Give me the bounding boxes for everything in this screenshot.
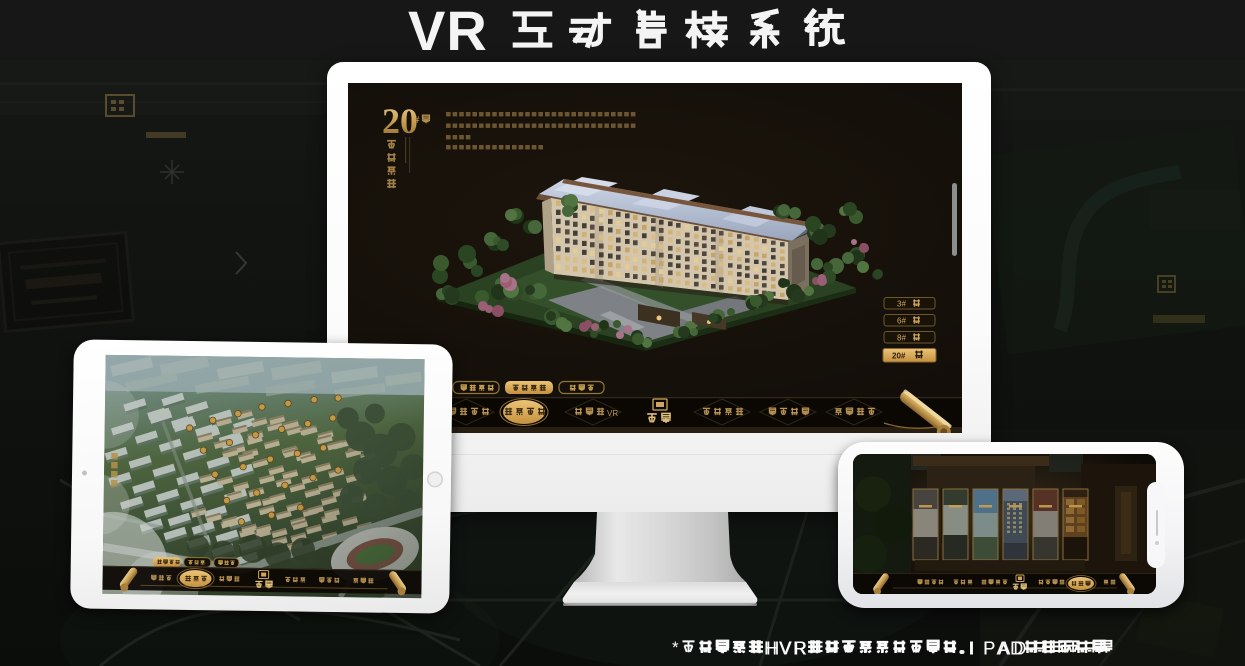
svg-text:3#: 3# — [897, 300, 906, 309]
svg-text:D: D — [1010, 638, 1023, 659]
svg-text:6#: 6# — [897, 317, 906, 326]
svg-text:VR: VR — [607, 409, 618, 418]
svg-text:20: 20 — [382, 101, 418, 141]
svg-text:I: I — [970, 638, 975, 659]
svg-text:#: # — [414, 114, 420, 126]
svg-text:8#: 8# — [897, 334, 906, 343]
svg-text:20#: 20# — [892, 352, 906, 361]
svg-text:VR: VR — [408, 0, 488, 58]
svg-text:R: R — [793, 638, 806, 659]
svg-text:H: H — [766, 638, 779, 659]
svg-text:P: P — [983, 638, 995, 659]
svg-text:V: V — [780, 638, 793, 659]
svg-text:*: * — [672, 638, 679, 657]
svg-text:A: A — [997, 638, 1010, 659]
